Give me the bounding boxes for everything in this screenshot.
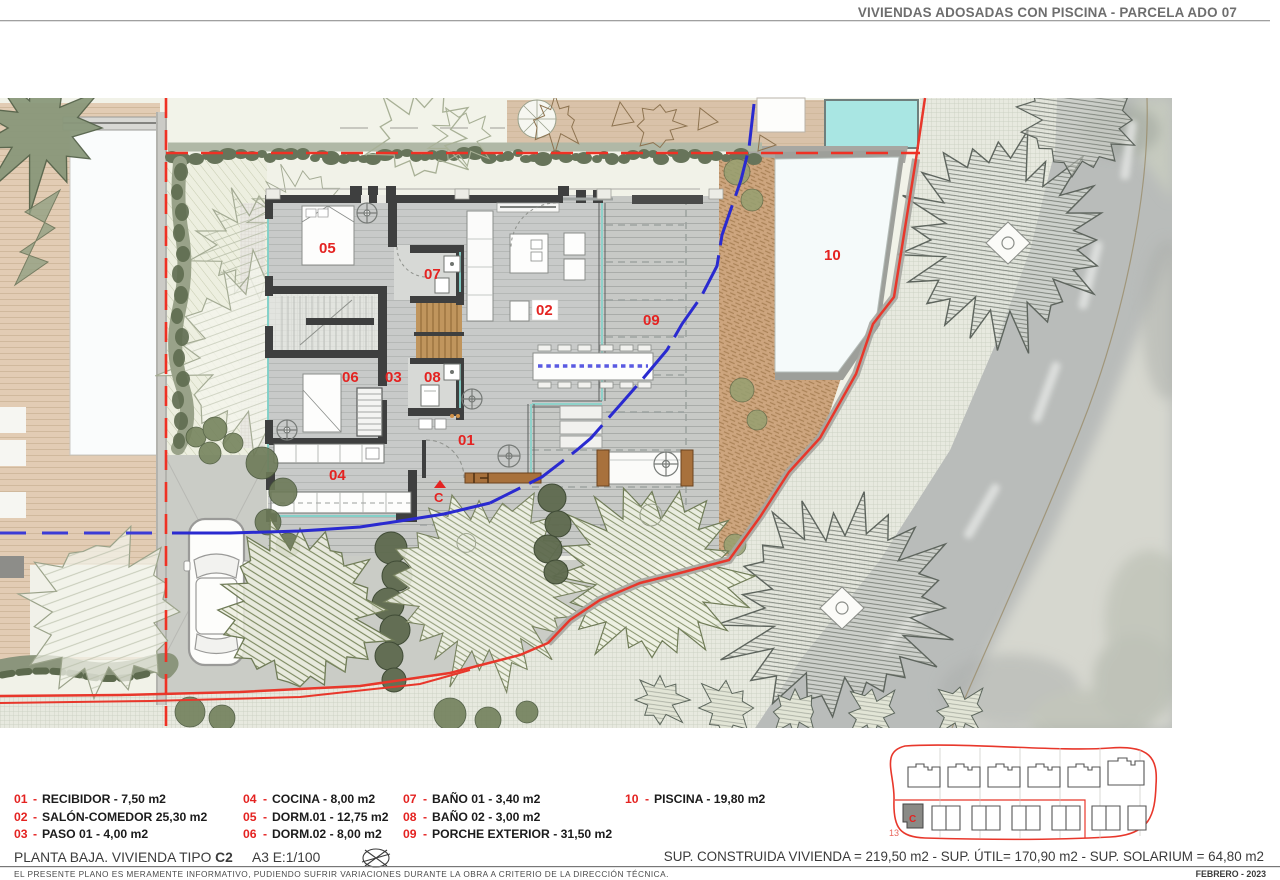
svg-text:13: 13 xyxy=(889,828,899,838)
svg-text:DORM.01 - 12,75 m2: DORM.01 - 12,75 m2 xyxy=(272,810,389,824)
svg-text:-: - xyxy=(645,792,649,806)
svg-text:-: - xyxy=(33,810,37,824)
svg-text:-: - xyxy=(423,827,427,841)
svg-text:BAÑO 01 - 3,40 m2: BAÑO 01 - 3,40 m2 xyxy=(432,791,541,806)
svg-text:09: 09 xyxy=(403,827,417,841)
svg-text:PISCINA - 19,80 m2: PISCINA - 19,80 m2 xyxy=(654,792,766,806)
svg-text:VIVIENDAS ADOSADAS CON PISCINA: VIVIENDAS ADOSADAS CON PISCINA - PARCELA… xyxy=(858,5,1237,20)
svg-text:04: 04 xyxy=(243,792,257,806)
svg-text:COCINA - 8,00 m2: COCINA - 8,00 m2 xyxy=(272,792,375,806)
svg-text:-: - xyxy=(263,810,267,824)
svg-text:-: - xyxy=(423,810,427,824)
svg-text:02: 02 xyxy=(14,810,28,824)
svg-text:03: 03 xyxy=(14,827,28,841)
svg-text:04: 04 xyxy=(329,467,346,484)
svg-text:PORCHE EXTERIOR - 31,50 m2: PORCHE EXTERIOR - 31,50 m2 xyxy=(432,827,612,841)
svg-text:SUP. CONSTRUIDA VIVIENDA = 219: SUP. CONSTRUIDA VIVIENDA = 219,50 m2 - S… xyxy=(664,849,1264,864)
svg-text:EL PRESENTE PLANO ES MERAMENTE: EL PRESENTE PLANO ES MERAMENTE INFORMATI… xyxy=(14,869,669,879)
svg-text:03: 03 xyxy=(385,369,402,386)
svg-text:RECIBIDOR - 7,50 m2: RECIBIDOR - 7,50 m2 xyxy=(42,792,166,806)
svg-text:05: 05 xyxy=(319,240,336,257)
svg-text:09: 09 xyxy=(643,312,660,329)
svg-text:01: 01 xyxy=(14,792,28,806)
svg-text:05: 05 xyxy=(243,810,257,824)
svg-text:06: 06 xyxy=(243,827,257,841)
svg-text:10: 10 xyxy=(824,247,841,264)
svg-text:-: - xyxy=(423,792,427,806)
svg-text:-: - xyxy=(263,792,267,806)
svg-text:PLANTA BAJA. VIVIENDA TIPO C2: PLANTA BAJA. VIVIENDA TIPO C2 xyxy=(14,850,233,865)
svg-text:-: - xyxy=(263,827,267,841)
svg-text:PASO 01 - 4,00 m2: PASO 01 - 4,00 m2 xyxy=(42,827,148,841)
svg-text:C: C xyxy=(909,814,916,825)
svg-text:01: 01 xyxy=(458,432,475,449)
svg-text:10: 10 xyxy=(625,792,639,806)
svg-text:08: 08 xyxy=(424,369,441,386)
svg-text:C: C xyxy=(434,490,444,505)
svg-text:BAÑO 02 - 3,00 m2: BAÑO 02 - 3,00 m2 xyxy=(432,809,541,824)
svg-text:-: - xyxy=(33,792,37,806)
svg-text:-: - xyxy=(33,827,37,841)
svg-text:A3 E:1/100: A3 E:1/100 xyxy=(252,850,321,865)
svg-text:DORM.02 - 8,00 m2: DORM.02 - 8,00 m2 xyxy=(272,827,382,841)
svg-text:08: 08 xyxy=(403,810,417,824)
svg-text:FEBRERO - 2023: FEBRERO - 2023 xyxy=(1196,869,1267,879)
svg-text:07: 07 xyxy=(424,266,441,283)
svg-text:02: 02 xyxy=(536,302,553,319)
svg-text:SALÓN-COMEDOR 25,30 m2: SALÓN-COMEDOR 25,30 m2 xyxy=(42,809,207,824)
svg-text:07: 07 xyxy=(403,792,417,806)
svg-text:06: 06 xyxy=(342,369,359,386)
